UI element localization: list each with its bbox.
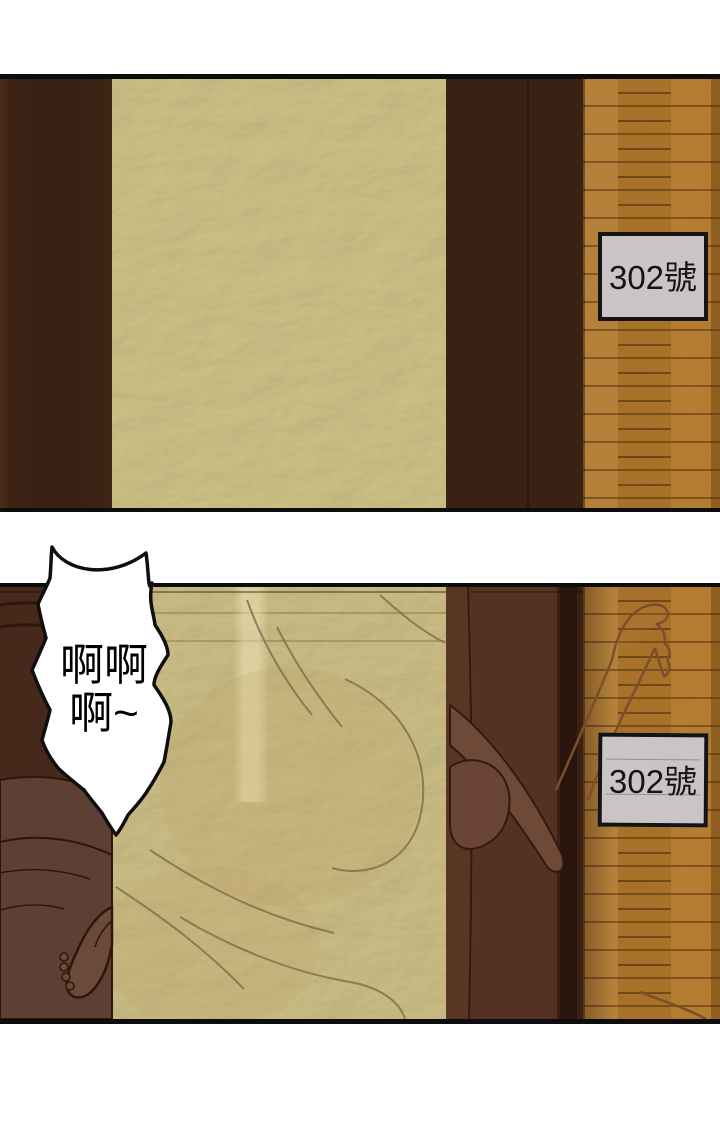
speech-line-1: 啊啊 [40,642,168,690]
door-left-dark-panel [0,79,112,508]
room-number-text: 302號 [609,259,697,294]
sign-reflection-line [606,759,700,761]
bottom-margin [0,1024,720,1139]
room-number-text: 302號 [609,762,697,798]
light-reflection-band [233,587,269,802]
speech-bubble-text: 啊啊 啊~ [40,642,168,739]
door-seam-line [527,79,529,508]
speech-line-2: 啊~ [40,690,168,738]
door-gold-textured-panel [112,79,446,508]
top-margin [0,0,720,74]
panel-door-exterior: 302號 [0,74,720,512]
door-frame-edge [557,587,583,1019]
room-number-sign: 302號 [598,232,708,321]
door-right-dark-panel [446,79,583,508]
room-number-sign: 302號 [598,733,709,828]
comic-page: 302號 [0,0,720,1139]
